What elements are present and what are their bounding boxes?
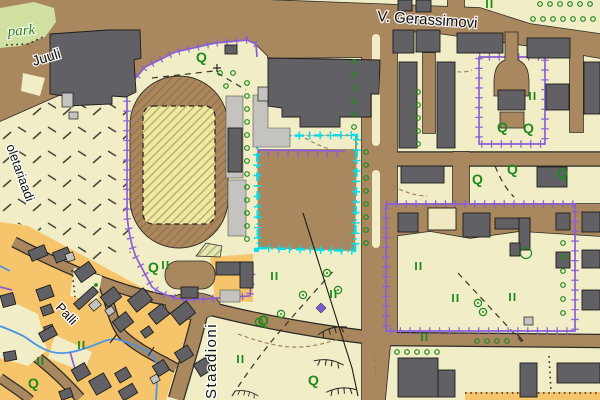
building	[268, 58, 380, 127]
tree-symbol: Q	[28, 375, 39, 391]
tree-symbol: Q	[472, 171, 483, 187]
tree-symbol: Q	[497, 119, 508, 135]
tree-symbol: Q	[523, 120, 534, 136]
tree-symbol: Q	[196, 49, 207, 65]
park-label: park	[6, 22, 36, 40]
map-canvas[interactable]: QQQQQQQQQQ V. Gerassimovi Juuli Palli St…	[0, 0, 600, 400]
house	[3, 351, 16, 362]
tree-symbol: Q	[557, 165, 568, 181]
map-viewport: QQQQQQQQQQ V. Gerassimovi Juuli Palli St…	[0, 0, 600, 400]
dirt-ground	[165, 261, 215, 289]
tree-symbol: Q	[308, 372, 319, 388]
building-foundation	[428, 208, 456, 230]
tree-dot-symbol	[94, 283, 98, 287]
tree-symbol: Q	[507, 161, 518, 177]
street-label-staadioni: Staadioni	[203, 323, 220, 399]
tree-symbol: Q	[148, 259, 159, 275]
tree-symbol: Q	[258, 312, 269, 328]
